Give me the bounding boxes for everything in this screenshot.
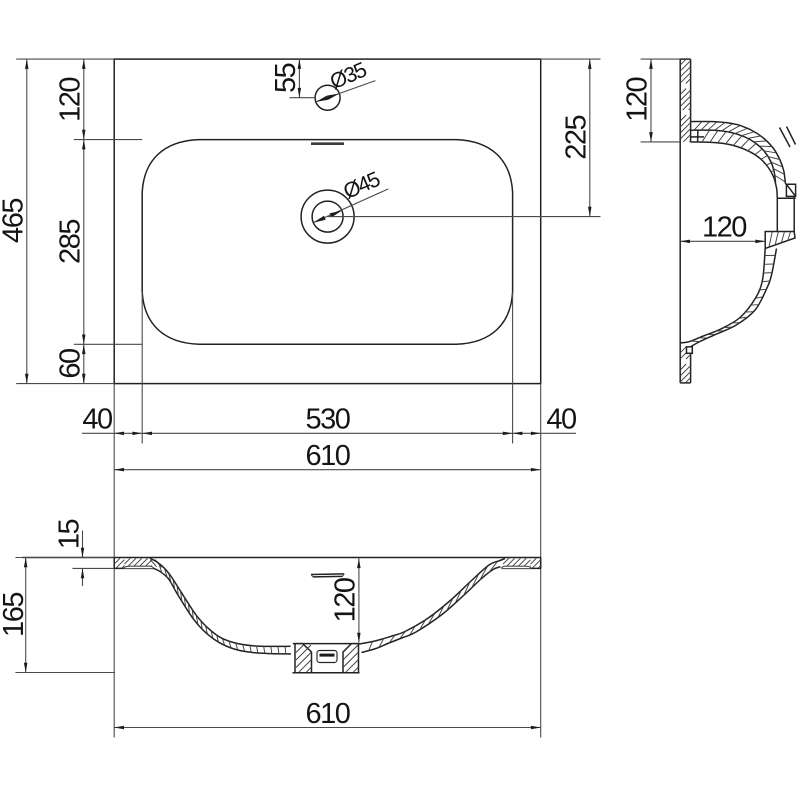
svg-text:165: 165 [0, 593, 30, 637]
svg-text:465: 465 [0, 199, 30, 243]
svg-text:120: 120 [702, 211, 746, 243]
svg-text:120: 120 [622, 77, 654, 121]
svg-text:120: 120 [330, 578, 362, 622]
svg-text:40: 40 [82, 404, 112, 436]
svg-text:610: 610 [306, 440, 350, 472]
svg-text:60: 60 [55, 349, 87, 379]
svg-text:610: 610 [306, 698, 350, 730]
svg-text:40: 40 [546, 404, 576, 436]
svg-text:120: 120 [55, 78, 87, 122]
svg-text:530: 530 [305, 404, 349, 436]
svg-text:225: 225 [561, 115, 593, 159]
svg-text:15: 15 [53, 520, 85, 550]
svg-text:285: 285 [55, 220, 87, 264]
svg-text:55: 55 [270, 63, 302, 93]
